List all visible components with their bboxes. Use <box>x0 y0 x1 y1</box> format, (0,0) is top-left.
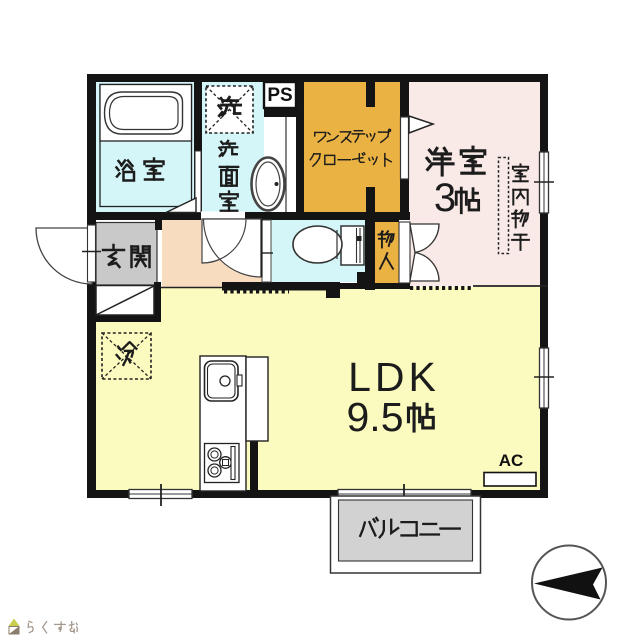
svg-text:AC: AC <box>499 451 524 470</box>
svg-text:9.5: 9.5 <box>347 394 404 440</box>
svg-text:3: 3 <box>434 176 456 220</box>
svg-text:PS: PS <box>267 85 292 106</box>
